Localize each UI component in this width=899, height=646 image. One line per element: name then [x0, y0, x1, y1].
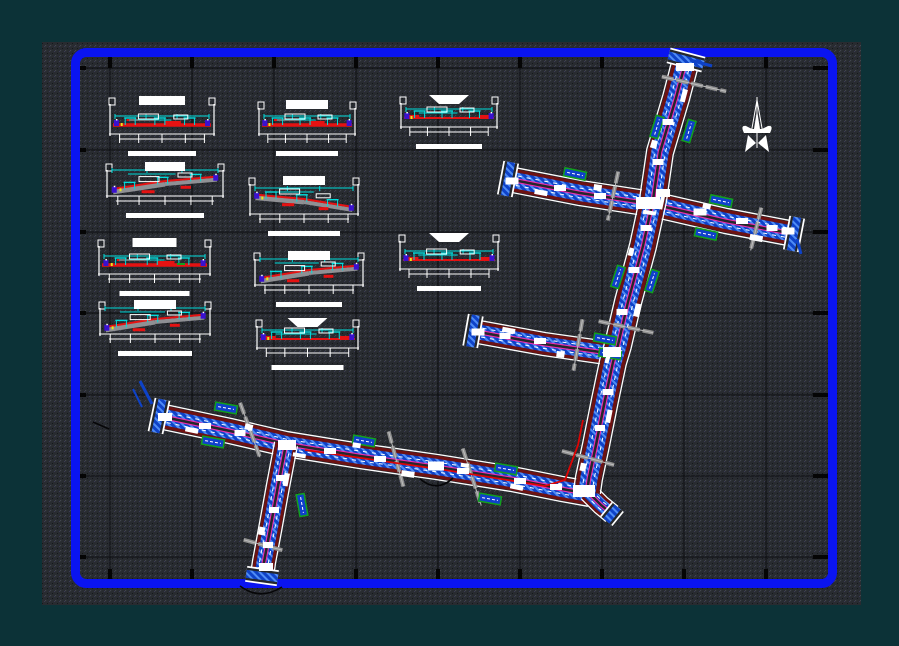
drawing-svg [0, 0, 899, 646]
cad-drawing-viewport [0, 0, 899, 646]
